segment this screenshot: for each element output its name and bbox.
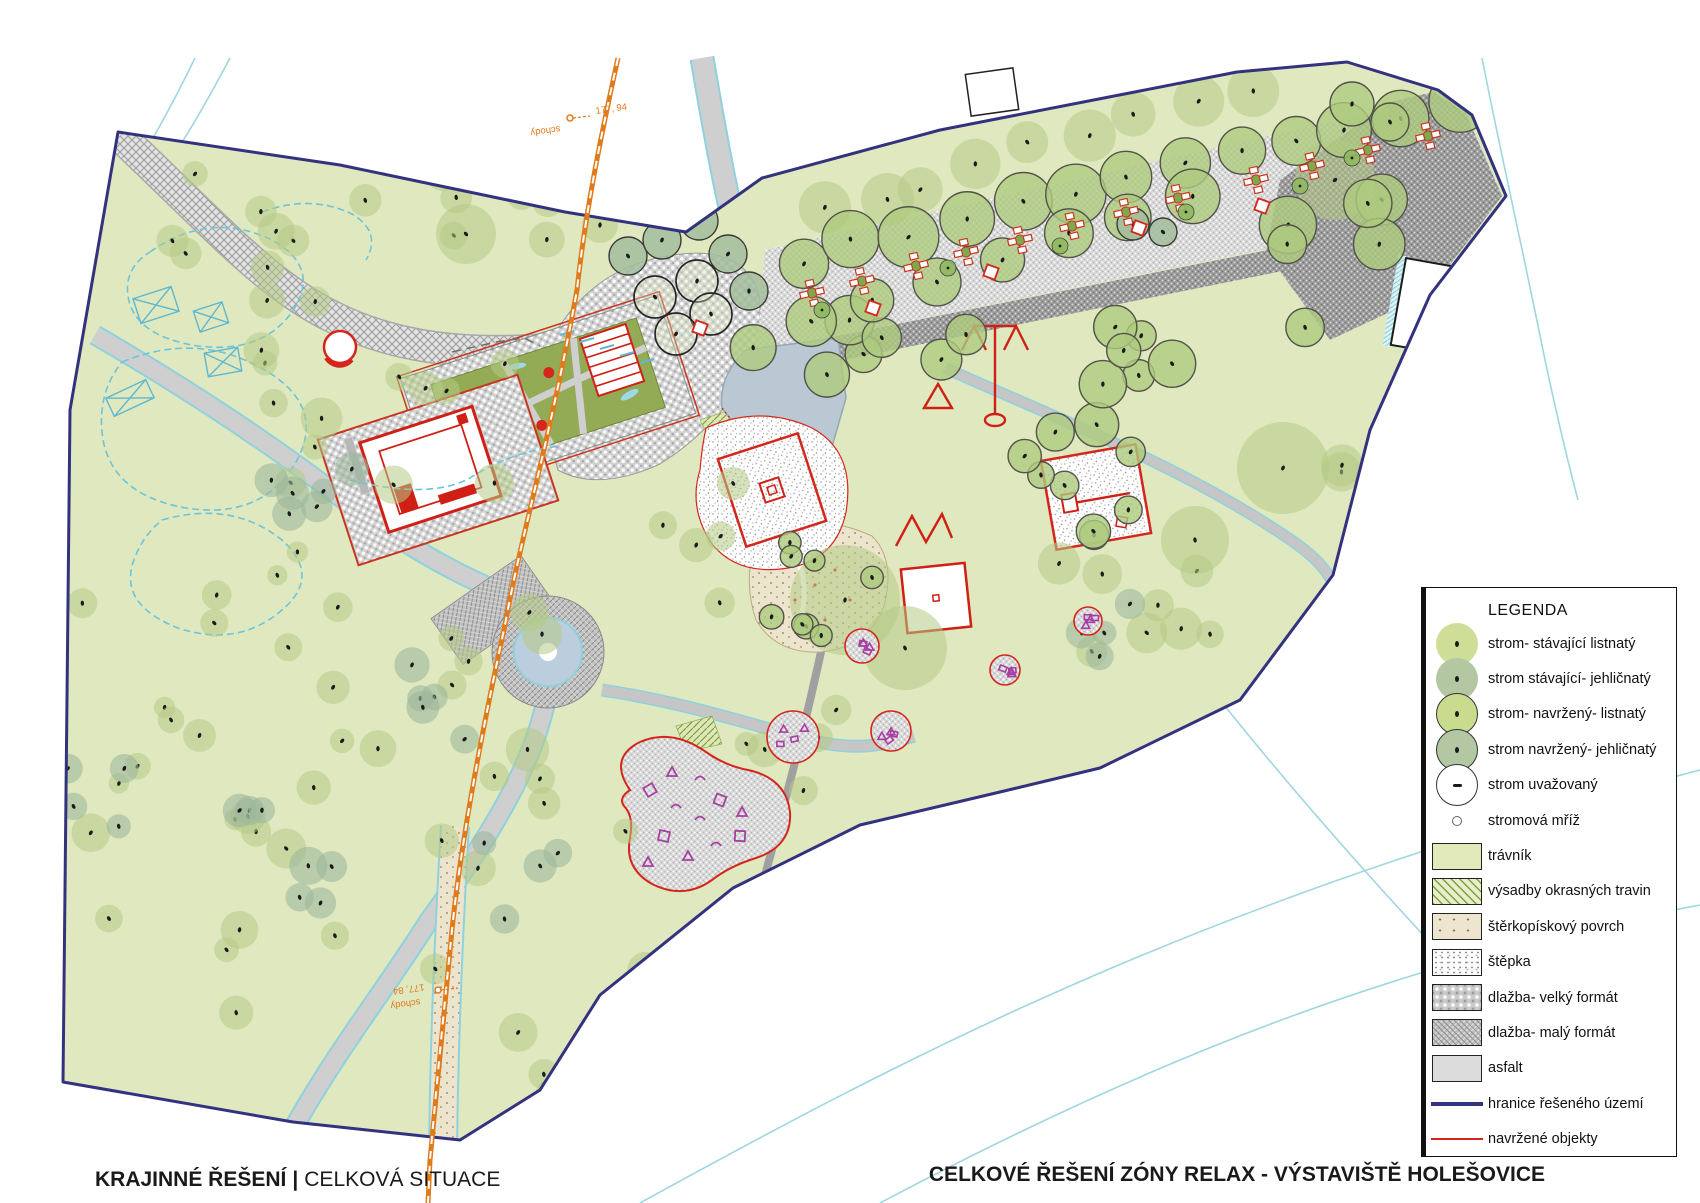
tree-ec — [311, 479, 337, 505]
proposed-objects-line-icon — [1431, 1138, 1483, 1140]
tree-pc — [609, 237, 647, 275]
tree-ed — [1082, 554, 1122, 594]
tree-ec — [316, 851, 347, 882]
legend-item-label: strom uvažovaný — [1488, 777, 1598, 793]
tree-ed — [374, 466, 412, 504]
tree-ed — [1038, 542, 1080, 584]
tree-pd — [1149, 340, 1196, 387]
tree-ed — [1196, 620, 1224, 648]
tree-pc — [730, 272, 768, 310]
sheet-title-left-secondary: CELKOVÁ SITUACE — [304, 1168, 500, 1191]
asphalt-icon — [1432, 1055, 1482, 1082]
tree-ed — [360, 730, 397, 767]
legend-item-tree-existing-coniferous: strom stávající- jehličnatý — [1426, 661, 1676, 696]
tree-ec — [1086, 642, 1114, 670]
tree-ed — [183, 719, 216, 752]
tree-ec — [335, 452, 369, 486]
tree-pd — [804, 550, 825, 571]
tree-ed — [385, 363, 413, 391]
tree-ec — [1115, 589, 1145, 619]
playground-circle — [1074, 607, 1102, 635]
ornamental-grasses-icon — [1432, 878, 1482, 905]
tree-ec — [394, 647, 429, 682]
tree-ec — [406, 691, 439, 724]
playground-circle — [767, 711, 819, 763]
legend-item-label: strom- navržený- listnatý — [1488, 706, 1646, 722]
red-square-object — [1131, 220, 1146, 235]
tree-ed — [259, 389, 288, 418]
tree-ed — [704, 588, 734, 618]
round-proposed-object — [324, 331, 356, 366]
tree-ed — [950, 139, 1000, 189]
tree-pd — [792, 614, 813, 635]
tree-bk — [655, 313, 697, 355]
tree-ed — [439, 626, 464, 651]
tree-ec — [472, 831, 496, 855]
tree-ed — [898, 167, 943, 212]
tree-pd — [804, 352, 849, 397]
tree-ed — [717, 467, 750, 500]
wood-chips-icon — [1432, 949, 1482, 976]
tree-ec — [110, 754, 139, 783]
tree-pd — [1107, 333, 1141, 367]
legend-item-label: navržené objekty — [1488, 1131, 1598, 1147]
tree-ed — [1111, 92, 1156, 137]
tree-ed — [297, 770, 331, 804]
tree-pd — [878, 207, 939, 268]
tree-pd — [810, 625, 832, 647]
tree-pc — [1149, 218, 1177, 246]
red-square-object — [692, 320, 707, 335]
tree-ed — [267, 565, 287, 585]
tree-ed — [302, 434, 327, 459]
tree-ed — [349, 184, 381, 216]
tree-grate-icon — [814, 302, 830, 318]
legend-item-paving-small: dlažba- malý formát — [1426, 1015, 1676, 1050]
legend-item-label: výsadby okrasných travin — [1488, 883, 1651, 899]
tree-ed — [1006, 121, 1048, 163]
tree-ec — [450, 725, 479, 754]
paving-small-icon — [1432, 1019, 1482, 1046]
legend-item-lawn: trávník — [1426, 838, 1676, 873]
tree-pd — [1036, 413, 1074, 451]
tree-pd — [1330, 82, 1374, 126]
tree-grate-icon — [1292, 178, 1308, 194]
legend-item-label: stromová mříž — [1488, 813, 1580, 829]
tree-pd — [730, 325, 776, 371]
tree-ed — [243, 332, 279, 368]
gravel-sand-icon — [1432, 913, 1482, 940]
tree-ec — [490, 904, 519, 933]
tree-ed — [480, 762, 510, 792]
playground-circle — [845, 629, 879, 663]
tree-pd — [759, 605, 784, 630]
legend-item-tree-grate: stromová mříž — [1426, 803, 1676, 838]
red-square-object — [1254, 198, 1269, 213]
tree-ec — [249, 797, 275, 823]
tree-ed — [323, 592, 353, 622]
tree-pd — [1115, 496, 1143, 524]
tree-grate-icon — [1052, 238, 1068, 254]
tree-pd — [946, 314, 986, 354]
tree-ec — [524, 849, 557, 882]
tree-ed — [460, 850, 496, 886]
tree-ed — [219, 996, 253, 1030]
tree-bk — [634, 276, 676, 318]
legend-title: LEGENDA — [1488, 602, 1676, 620]
tree-ed — [1142, 589, 1174, 621]
north-building-outline — [965, 68, 1018, 116]
tree-ed — [1064, 109, 1116, 161]
tree-ed — [1161, 506, 1229, 574]
legend-item-tree-considered: strom uvažovaný — [1426, 768, 1676, 803]
tree-pd — [861, 566, 884, 589]
tree-pd — [1268, 225, 1307, 264]
tree-pd — [1008, 439, 1041, 472]
tree-ed — [300, 286, 331, 317]
tree-grate-icon — [1344, 150, 1360, 166]
legend-item-tree-existing-deciduous: strom- stávající listnatý — [1426, 626, 1676, 661]
tree-ed — [679, 528, 713, 562]
tree-ed — [245, 196, 277, 228]
legend-item-label: strom- stávající listnatý — [1488, 636, 1635, 652]
legend-item-wood-chips: štěpka — [1426, 945, 1676, 980]
tree-ed — [251, 251, 285, 285]
tree-ed — [425, 823, 459, 857]
tree-ed — [529, 222, 565, 258]
sheet-title-left-primary: KRAJINNÉ ŘEŠENÍ — [95, 1168, 286, 1191]
tree-ed — [649, 511, 677, 539]
tree-pd — [1344, 179, 1392, 227]
tree-pd — [862, 318, 901, 357]
tree-grate-icon — [1452, 816, 1462, 826]
tree-pd — [780, 545, 802, 567]
tree-ed — [491, 349, 519, 377]
tree-ed — [613, 819, 638, 844]
legend-item-label: strom stávající- jehličnatý — [1488, 671, 1651, 687]
tree-pd — [1219, 127, 1266, 174]
tree-pd — [1076, 514, 1110, 548]
tree-pd — [1075, 403, 1119, 447]
sheet-title-separator: | — [286, 1168, 304, 1191]
legend: LEGENDA strom- stávající listnatýstrom s… — [1421, 587, 1677, 1157]
sheet-title-right: CELKOVÉ ŘEŠENÍ ZÓNY RELAX - VÝSTAVIŠTĚ H… — [929, 1163, 1545, 1187]
tree-ed — [182, 161, 208, 187]
tree-ed — [475, 464, 514, 503]
tree-ed — [436, 204, 496, 264]
tree-ed — [821, 695, 851, 725]
playground-circle — [871, 711, 911, 751]
tree-pd — [1371, 103, 1409, 141]
tree-pd — [1286, 308, 1324, 346]
tree-ec — [285, 883, 313, 911]
paving-large-icon — [1432, 984, 1482, 1011]
legend-item-label: štěrkopískový povrch — [1488, 919, 1624, 935]
red-square-object — [983, 264, 998, 279]
tree-ed — [170, 238, 202, 270]
tree-ed — [522, 614, 563, 655]
tree-ed — [274, 633, 302, 661]
playground-circle — [990, 655, 1020, 685]
site-plan-sheet: 177, 94schody177, 84schody LEGENDA strom… — [0, 0, 1700, 1203]
tree-pd — [1116, 437, 1145, 466]
legend-item-proposed-objects-line: navržené objekty — [1426, 1121, 1676, 1156]
tree-ed — [499, 1013, 538, 1052]
tree-ed — [525, 764, 555, 794]
tree-pd — [822, 211, 879, 268]
legend-item-label: asfalt — [1488, 1060, 1523, 1076]
tree-ed — [316, 671, 349, 704]
lawn-icon — [1432, 843, 1482, 870]
legend-item-label: dlažba- velký formát — [1488, 990, 1618, 1006]
legend-item-label: strom navržený- jehličnatý — [1488, 742, 1656, 758]
tree-ed — [200, 609, 228, 637]
tree-ed — [1237, 422, 1329, 514]
tree-ec — [107, 814, 131, 838]
tree-ed — [454, 647, 482, 675]
tree-grate-icon — [1178, 204, 1194, 220]
tree-ed — [221, 911, 259, 949]
legend-rows: strom- stávající listnatýstrom stávající… — [1426, 626, 1676, 1157]
tree-pd — [779, 239, 828, 288]
boundary-line-icon — [1431, 1102, 1483, 1106]
tree-ed — [249, 282, 285, 318]
legend-item-label: dlažba- malý formát — [1488, 1025, 1615, 1041]
tree-ed — [301, 398, 343, 440]
tree-ed — [95, 905, 123, 933]
legend-item-tree-proposed-deciduous: strom- navržený- listnatý — [1426, 697, 1676, 732]
tree-ed — [67, 588, 97, 618]
legend-item-paving-large: dlažba- velký formát — [1426, 980, 1676, 1015]
tree-considered-icon — [1436, 764, 1478, 806]
tree-ed — [202, 580, 232, 610]
tree-ec — [272, 497, 306, 531]
tree-ed — [158, 707, 185, 734]
red-square-object — [865, 300, 880, 315]
tree-ed — [789, 776, 818, 805]
legend-item-tree-proposed-coniferous: strom navržený- jehličnatý — [1426, 732, 1676, 767]
legend-item-label: štěpka — [1488, 954, 1531, 970]
legend-item-boundary-line: hranice řešeného území — [1426, 1086, 1676, 1121]
tree-ed — [321, 922, 349, 950]
tree-ed — [408, 371, 442, 405]
legend-item-ornamental-grasses: výsadby okrasných travin — [1426, 874, 1676, 909]
tree-ed — [330, 729, 354, 753]
tree-grate-icon — [940, 260, 956, 276]
legend-item-label: trávník — [1488, 848, 1532, 864]
legend-item-gravel-sand: štěrkopískový povrch — [1426, 909, 1676, 944]
tree-ed — [287, 541, 308, 562]
tree-pd — [995, 173, 1053, 231]
legend-item-asphalt: asfalt — [1426, 1051, 1676, 1086]
tree-pc — [709, 235, 747, 273]
sheet-title-left: KRAJINNÉ ŘEŠENÍ|CELKOVÁ SITUACE — [95, 1168, 500, 1192]
legend-item-label: hranice řešeného území — [1488, 1096, 1644, 1112]
